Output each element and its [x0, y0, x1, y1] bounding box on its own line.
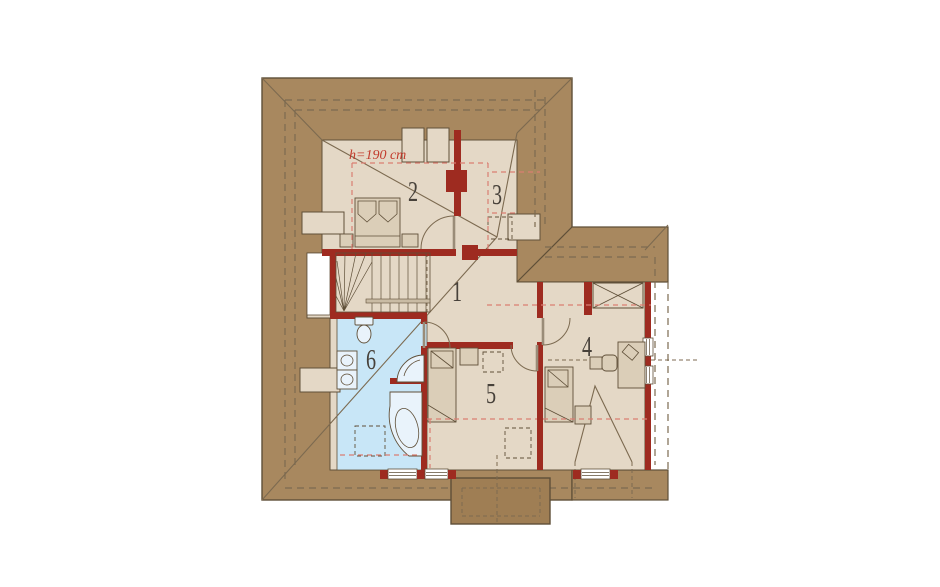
- desk-chair: [602, 355, 617, 371]
- sink-left-2: [337, 370, 357, 389]
- window-jamb-1: [380, 470, 388, 479]
- bed-room2: [355, 198, 400, 247]
- chimney-room4: [593, 283, 643, 308]
- wall-room4-east-top: [645, 282, 651, 338]
- window-hall-south: [425, 469, 448, 479]
- nightstand-room5: [460, 348, 478, 365]
- window-room4-south: [581, 469, 610, 479]
- wall-room2-south: [322, 249, 456, 256]
- window-jamb-3: [448, 470, 456, 479]
- wall-room4-east-mid: [645, 356, 651, 366]
- wall-hall-room4-top: [537, 282, 543, 318]
- left-dormer-bath: [300, 368, 340, 392]
- bed-room4: [545, 367, 573, 422]
- wall-stair-west: [330, 253, 336, 315]
- attic-floor-plan: h=190 cm 1 2 3 4 5 6: [0, 0, 940, 587]
- floor-plan-drawing: h=190 cm 1 2 3 4 5 6: [0, 0, 940, 587]
- sink-left-1: [337, 351, 357, 370]
- wall-room4-pier: [584, 282, 592, 315]
- room5-bottom-dormer-outline: [505, 428, 531, 458]
- left-dormer-bedroom: [302, 212, 344, 234]
- toilet-bowl: [357, 325, 371, 343]
- room-label-3: 3: [492, 180, 502, 211]
- nightstand-room2-right: [402, 234, 418, 247]
- stair-handrail: [366, 299, 430, 303]
- nightstand-room2-left: [340, 234, 353, 247]
- window-jamb-5: [610, 470, 618, 479]
- height-note: h=190 cm: [349, 148, 406, 163]
- room-label-4: 4: [582, 332, 592, 363]
- room-label-1: 1: [452, 277, 462, 308]
- room-label-2: 2: [408, 177, 418, 208]
- wall-room4-east-bottom: [645, 384, 651, 470]
- window-jamb-2: [417, 470, 425, 479]
- room-label-5: 5: [486, 379, 496, 410]
- top-dormer-right: [427, 128, 449, 162]
- room-label-6: 6: [366, 345, 376, 376]
- window-bath: [388, 469, 417, 479]
- chimney-hall: [462, 245, 478, 260]
- chimney-room2: [446, 170, 467, 192]
- desk-room4: [618, 342, 645, 388]
- porch-roof-rect: [451, 478, 550, 524]
- nightstand-room4: [575, 406, 591, 424]
- stair-void: [307, 253, 330, 315]
- window-jamb-4: [573, 470, 581, 479]
- toilet-tank: [355, 317, 373, 325]
- wall-bath-north: [330, 312, 424, 319]
